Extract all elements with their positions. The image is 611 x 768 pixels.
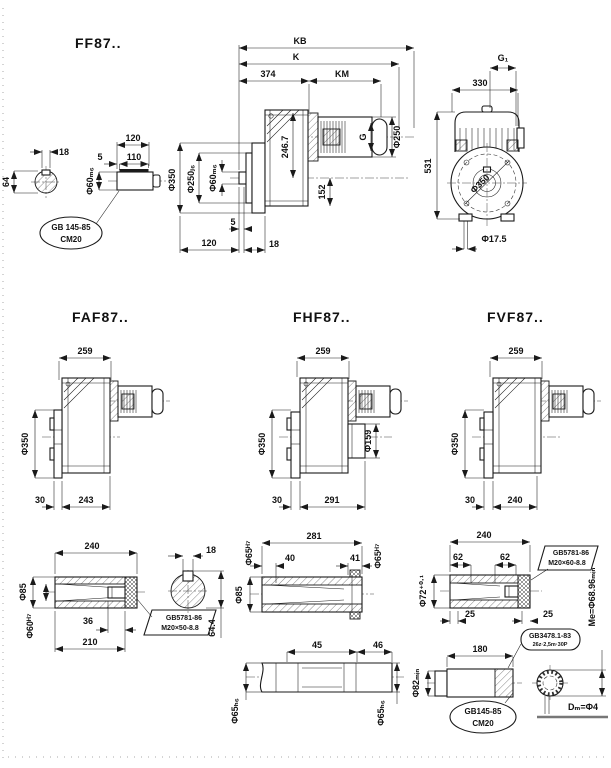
dim-25-left: 25 bbox=[465, 609, 475, 619]
dim-bottom-18: 18 bbox=[269, 239, 279, 249]
dim-g1: G₁ bbox=[498, 53, 509, 63]
dim-243: 243 bbox=[78, 495, 93, 505]
dim-259: 259 bbox=[508, 346, 523, 356]
dim-41: 41 bbox=[350, 553, 360, 563]
dim-shaft-110: 110 bbox=[127, 152, 142, 162]
hollow-shaft-detail-a: 240 Φ85 Φ60ᴴ⁷ 36 210 GB5781-86 M20×50-8.… bbox=[18, 541, 224, 652]
dim-dia350: Φ350 bbox=[257, 433, 267, 455]
dim-dia65h7-left: Φ65ᴴ⁷ bbox=[244, 540, 254, 565]
dim-dia159: Φ159 bbox=[363, 430, 373, 452]
dim-30: 30 bbox=[272, 495, 282, 505]
dim-18: 18 bbox=[206, 545, 216, 555]
fhf87-view: FHF87.. 259 Φ159 Φ350 30 291 bbox=[257, 309, 408, 510]
fvf87-view: FVF87.. 259 Φ350 30 240 bbox=[450, 309, 601, 510]
dim-dia65h7-right: Φ65ᴴ⁷ bbox=[373, 543, 383, 568]
dim-flange-dia: Φ350 bbox=[167, 169, 177, 191]
view-title-fhf87: FHF87.. bbox=[293, 309, 351, 325]
dim-62-left: 62 bbox=[453, 552, 463, 562]
faf87-view: FAF87.. 259 Φ350 30 243 bbox=[20, 309, 170, 510]
center-hole-std: GB145-85 bbox=[465, 707, 502, 716]
dim-key-height: 64 bbox=[1, 177, 11, 187]
hollow-shaft-detail-b: 281 Φ65ᴴ⁷ Φ65ᴴ⁷ 40 41 Φ85 45 46 Φ65ₕ₆ Φ6… bbox=[230, 531, 404, 726]
dim-shaft-dia: Φ60ₘ₆ bbox=[208, 164, 218, 191]
dim-210: 210 bbox=[82, 637, 97, 647]
dim-motor-dia: Φ250 bbox=[392, 126, 402, 148]
center-hole-type: CM20 bbox=[472, 719, 494, 728]
spline-std: GB3478.1-83 bbox=[529, 633, 571, 640]
dim-dia350: Φ350 bbox=[20, 433, 30, 455]
dim-531: 531 bbox=[423, 158, 433, 173]
ff87-key-cross-section: 18 64 bbox=[1, 147, 69, 198]
dim-g: G bbox=[358, 133, 368, 140]
dim-40: 40 bbox=[285, 553, 295, 563]
dim-46: 46 bbox=[373, 640, 383, 650]
dim-36: 36 bbox=[83, 616, 93, 626]
dim-330: 330 bbox=[472, 78, 487, 88]
view-title-fvf87: FVF87.. bbox=[487, 309, 544, 325]
dim-62-right: 62 bbox=[500, 552, 510, 562]
dim-kb: KB bbox=[294, 36, 307, 46]
center-hole-std: GB 145-85 bbox=[51, 223, 91, 232]
bolt-size: M20×60-8.8 bbox=[548, 560, 586, 567]
dim-240: 240 bbox=[507, 495, 522, 505]
dim-shaft-120: 120 bbox=[125, 133, 140, 143]
dim-height-246: 246.7 bbox=[280, 136, 290, 159]
dim-dm-pin: Dₘ=Φ4 bbox=[568, 702, 598, 712]
dim-281: 281 bbox=[306, 531, 321, 541]
dim-me-measure: Me=Φ68.96ₘᵢₙ bbox=[587, 567, 597, 626]
gear-unit-dimension-drawing: FF87.. 18 64 120 5 110 Φ60ₘ₆ GB 145-85 C… bbox=[0, 0, 611, 768]
view-title-faf87: FAF87.. bbox=[72, 309, 129, 325]
center-hole-type: CM20 bbox=[60, 235, 82, 244]
dim-km: KM bbox=[335, 69, 349, 79]
dim-dia85: Φ85 bbox=[234, 586, 244, 603]
spline-spec: 26z·2,5m·30P bbox=[533, 642, 568, 648]
ff87-side-view: Φ350 G₁ 330 531 Φ17.5 bbox=[423, 53, 527, 249]
dim-dia82min: Φ82ₘᵢₙ bbox=[411, 669, 421, 698]
dim-dia350: Φ350 bbox=[450, 433, 460, 455]
center-hole-callout-bubble bbox=[40, 217, 102, 249]
dim-291: 291 bbox=[324, 495, 339, 505]
dim-30: 30 bbox=[465, 495, 475, 505]
center-hole-callout-bubble bbox=[450, 701, 516, 733]
view-title-ff87: FF87.. bbox=[75, 35, 121, 51]
dim-shaft-5: 5 bbox=[97, 152, 102, 162]
dim-259: 259 bbox=[315, 346, 330, 356]
dim-259: 259 bbox=[77, 346, 92, 356]
dim-dia60h7: Φ60ᴴ⁷ bbox=[25, 613, 35, 638]
dim-bottom-5: 5 bbox=[230, 217, 235, 227]
dim-240: 240 bbox=[476, 530, 491, 540]
dim-dia72: Φ72⁺⁰·¹ bbox=[418, 575, 428, 607]
dim-spigot-dia: Φ250ⱼ₆ bbox=[186, 165, 196, 193]
dim-25-right: 25 bbox=[543, 609, 553, 619]
dim-bottom-120: 120 bbox=[201, 238, 216, 248]
dim-45: 45 bbox=[312, 640, 322, 650]
ff87-front-view: 246.7 152 G Φ250 KB K 374 KM Φ350 Φ250ⱼ₆… bbox=[167, 36, 415, 253]
dim-30: 30 bbox=[35, 495, 45, 505]
dim-64-4: 64.4 bbox=[207, 619, 217, 637]
dim-dia85: Φ85 bbox=[18, 583, 28, 600]
dim-hole-dia: Φ17.5 bbox=[482, 234, 507, 244]
bolt-std: GB5781-86 bbox=[166, 615, 202, 622]
dim-key-width: 18 bbox=[59, 147, 69, 157]
bolt-std: GB5781-86 bbox=[553, 550, 589, 557]
dim-k: K bbox=[293, 52, 300, 62]
dim-shaft-dia: Φ60ₘ₆ bbox=[85, 167, 95, 194]
hollow-shaft-detail-c: 240 62 62 GB5781-86 M20×60-8.8 Φ72⁺⁰·¹ 2… bbox=[411, 530, 608, 733]
dim-dia65h6-left: Φ65ₕ₆ bbox=[230, 698, 240, 724]
dim-374: 374 bbox=[260, 69, 275, 79]
drawing-sheet: FF87.. 18 64 120 5 110 Φ60ₘ₆ GB 145-85 C… bbox=[0, 0, 611, 768]
dim-180: 180 bbox=[472, 644, 487, 654]
bolt-size: M20×50-8.8 bbox=[161, 625, 199, 632]
dim-height-152: 152 bbox=[317, 184, 327, 199]
dim-dia65h6-right: Φ65ₕ₆ bbox=[376, 700, 386, 726]
dim-240: 240 bbox=[84, 541, 99, 551]
